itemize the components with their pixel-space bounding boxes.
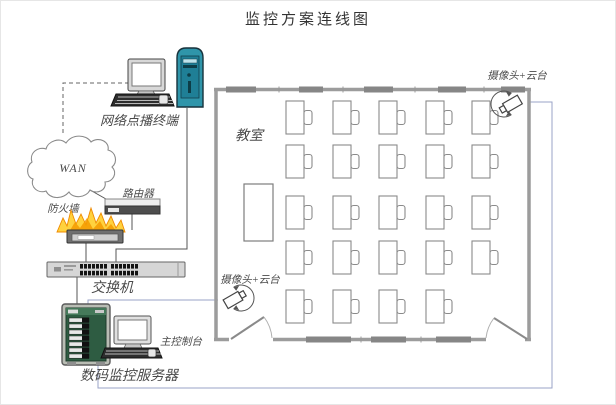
student-chair: [304, 206, 312, 220]
wan-cloud: WAN: [28, 136, 116, 197]
rack-foot: [96, 362, 105, 365]
camera-top-label: 摄像头+云台: [487, 70, 547, 82]
student-desk: [426, 101, 444, 134]
student-chair: [304, 111, 312, 125]
student-desk: [286, 241, 304, 274]
student-desk: [286, 196, 304, 229]
vod-terminal-group: 网络点播终端: [100, 48, 203, 128]
student-desk: [472, 101, 490, 134]
router-badge: [108, 208, 119, 212]
student-desk: [379, 101, 397, 134]
student-desk: [379, 145, 397, 178]
tower-vent: [188, 81, 191, 93]
console-stand: [124, 344, 142, 348]
tower-power-button: [187, 73, 191, 77]
student-chair: [397, 155, 405, 169]
student-desk: [333, 196, 351, 229]
tower-drive-bay: [183, 59, 197, 63]
switch-label: 交换机: [91, 280, 134, 296]
vod-terminal-label: 网络点播终端: [100, 113, 180, 128]
student-desk: [333, 290, 351, 323]
student-desk: [472, 241, 490, 274]
student-chair: [351, 251, 359, 265]
student-chair: [304, 300, 312, 314]
firewall-slot: [78, 236, 94, 240]
rack-foot: [67, 362, 76, 365]
monitoring-diagram: 监控方案连线图: [1, 1, 615, 404]
router-device: 路由器: [105, 188, 160, 214]
classroom-floorplan: 教室 摄像头+云台 摄像头+云台: [214, 70, 547, 343]
student-desk: [472, 145, 490, 178]
monitor-screen: [132, 63, 161, 86]
student-desk: [333, 241, 351, 274]
console-group: 主控制台: [101, 316, 202, 358]
student-desk: [426, 290, 444, 323]
student-desk: [426, 145, 444, 178]
switch-logo: [54, 267, 61, 272]
student-desk: [472, 196, 490, 229]
student-desk: [286, 145, 304, 178]
student-desk: [426, 241, 444, 274]
student-desk: [379, 196, 397, 229]
console-mouse-icon: [148, 349, 156, 357]
dvr-server-label: 数码监控服务器: [80, 368, 180, 384]
router-label: 路由器: [122, 188, 155, 200]
rack-header-badge: [68, 310, 78, 314]
cable-camera-bottom-to-server: [88, 300, 225, 304]
wan-label: WAN: [59, 161, 87, 175]
switch-print: [64, 265, 76, 267]
student-desk: [333, 101, 351, 134]
student-chair: [490, 206, 498, 220]
student-chair: [351, 111, 359, 125]
student-chair: [397, 251, 405, 265]
student-chair: [397, 206, 405, 220]
diagram-canvas: 监控方案连线图: [0, 0, 616, 405]
router-top: [105, 199, 160, 206]
student-desk: [379, 290, 397, 323]
student-chair: [444, 111, 452, 125]
console-label: 主控制台: [160, 336, 202, 348]
switch-print: [64, 269, 73, 271]
student-chair: [304, 155, 312, 169]
tower-drive-bay: [183, 65, 197, 68]
student-desk: [286, 101, 304, 134]
console-screen: [118, 320, 147, 340]
rack-header-led: [95, 310, 104, 313]
student-chair: [444, 300, 452, 314]
student-chair: [351, 300, 359, 314]
student-desk: [286, 290, 304, 323]
firewall-label: 防火墙: [47, 203, 80, 215]
switch-device: 交换机: [47, 262, 185, 296]
student-chair: [444, 155, 452, 169]
student-chair: [444, 251, 452, 265]
student-chair: [444, 206, 452, 220]
student-desk: [333, 145, 351, 178]
student-desk: [379, 241, 397, 274]
page-title: 监控方案连线图: [245, 10, 371, 28]
classroom-label: 教室: [235, 128, 265, 144]
student-chair: [304, 251, 312, 265]
student-chair: [397, 300, 405, 314]
student-chair: [351, 206, 359, 220]
student-chair: [490, 155, 498, 169]
student-chair: [490, 251, 498, 265]
mouse-icon: [159, 95, 168, 104]
teacher-podium: [244, 184, 273, 241]
cable-vod-to-switch: [116, 108, 187, 262]
student-desk: [426, 196, 444, 229]
student-chair: [351, 155, 359, 169]
student-chair: [397, 111, 405, 125]
camera-bottom-label: 摄像头+云台: [220, 274, 280, 286]
